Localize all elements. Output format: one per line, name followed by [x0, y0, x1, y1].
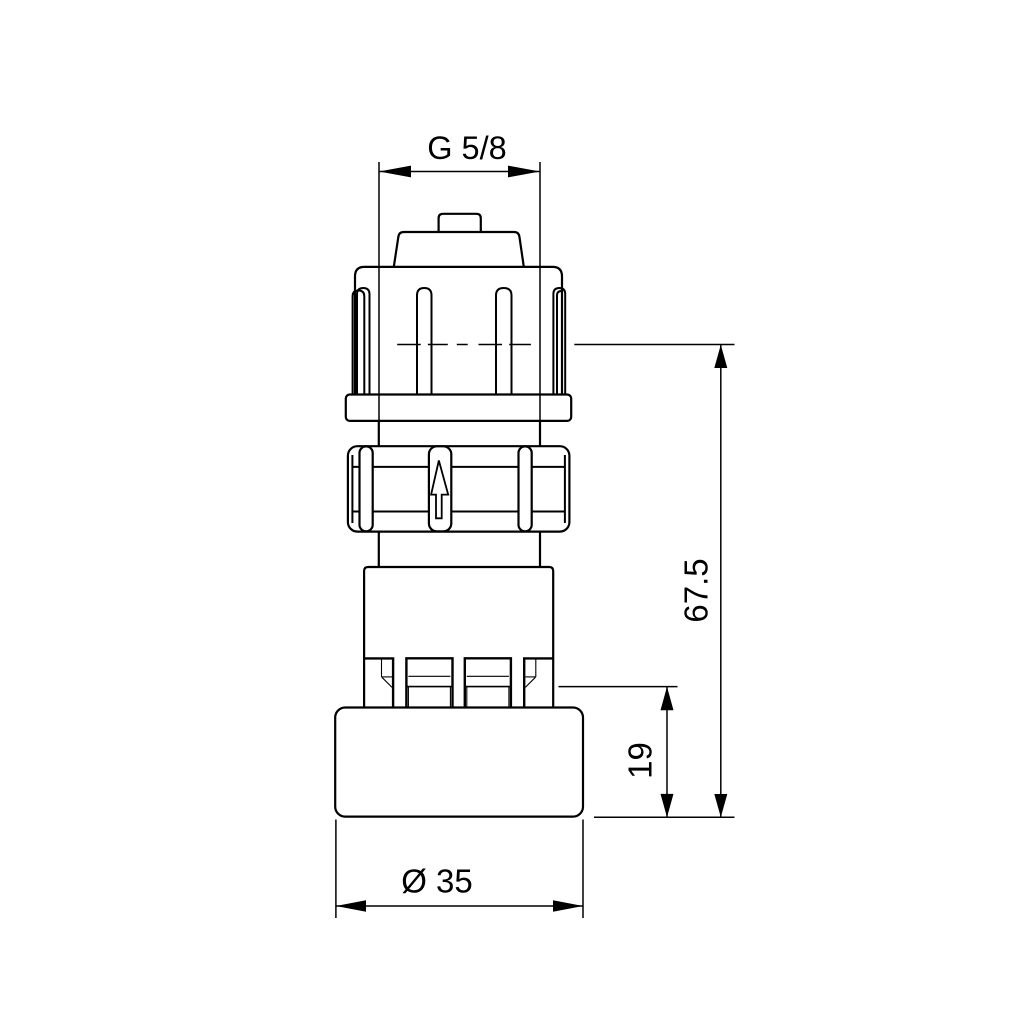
- svg-text:Ø 35: Ø 35: [401, 863, 473, 900]
- svg-text:19: 19: [622, 742, 659, 779]
- svg-text:G 5/8: G 5/8: [427, 130, 507, 166]
- svg-text:67.5: 67.5: [678, 558, 715, 622]
